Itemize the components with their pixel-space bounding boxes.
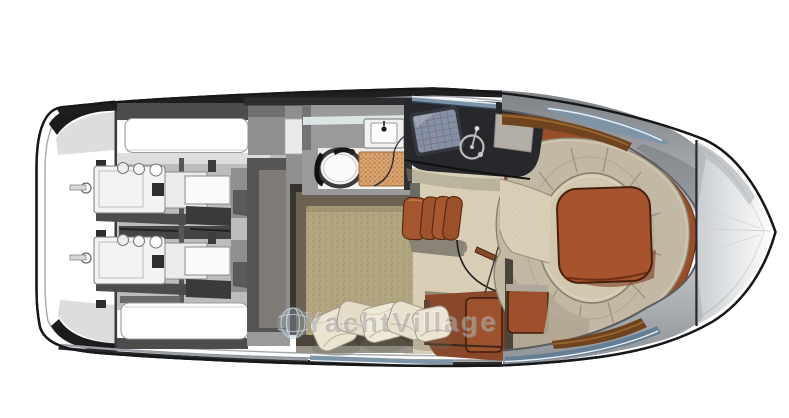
svg-text:YachtVillage: YachtVillage (305, 307, 499, 338)
